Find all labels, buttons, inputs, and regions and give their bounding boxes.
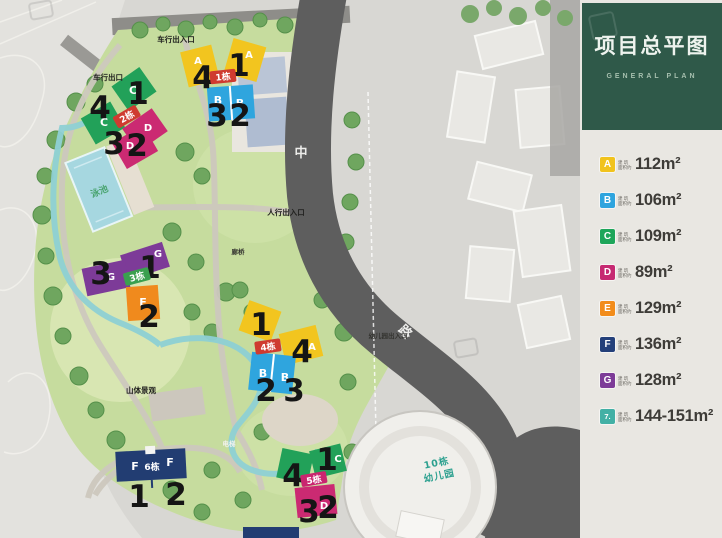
elevator-label: 电梯 — [223, 439, 237, 448]
watermark-mark — [588, 11, 619, 42]
unit-type-swatch: C — [600, 229, 615, 244]
road-name-char-top: 中 — [294, 145, 307, 161]
unit-number: 2 — [255, 373, 277, 409]
legend-panel: 项目总平图 GENERAL PLAN A建 筑面积约112m²B建 筑面积约10… — [580, 0, 722, 538]
unit-area: 112m² — [635, 155, 680, 174]
unit-area: 89m² — [635, 263, 672, 282]
pedestrian-entrance-label: 人行出入口 — [267, 207, 305, 217]
unit-type-swatch: E — [600, 301, 615, 316]
unit-type-swatch: D — [600, 265, 615, 280]
unit-number: 4 — [291, 334, 313, 370]
mountain-landscape-label: 山体景观 — [126, 385, 156, 395]
unit-number: 3 — [206, 98, 228, 134]
unit-area: 136m² — [635, 335, 681, 354]
screenshot-root: 泳池 10栋 幼儿园 中 路 A A — [0, 0, 722, 538]
legend-note: 建 筑面积约 — [618, 340, 632, 350]
legend-row: B建 筑面积约106m² — [600, 193, 713, 208]
legend-row: A建 筑面积约112m² — [600, 157, 713, 172]
unit-number: 1 — [250, 307, 272, 343]
cropped-building — [243, 527, 299, 538]
vehicle-exit-label: 车行出口 — [93, 72, 123, 82]
side-road — [550, 0, 580, 176]
kindergarten-entrance-label: 幼儿园出入口 — [369, 331, 408, 340]
unit-number: 4 — [282, 458, 304, 494]
unit-area: 129m² — [635, 299, 681, 318]
unit-number: 3 — [103, 126, 125, 162]
unit-letter: F — [131, 460, 139, 473]
legend-row: C建 筑面积约109m² — [600, 229, 713, 244]
legend-row: F建 筑面积约136m² — [600, 337, 713, 352]
unit-number: 3 — [90, 256, 112, 292]
unit-number: 1 — [128, 479, 150, 515]
bridge-label: 廊桥 — [232, 247, 246, 256]
plan-title-card: 项目总平图 GENERAL PLAN — [582, 3, 722, 130]
unit-number: 4 — [89, 90, 111, 126]
unit-legend: A建 筑面积约112m²B建 筑面积约106m²C建 筑面积约109m²D建 筑… — [600, 157, 713, 445]
legend-row: E建 筑面积约129m² — [600, 301, 713, 316]
unit-area: 144-151m² — [635, 407, 713, 426]
unit-number: 2 — [126, 128, 148, 164]
unit-type-swatch: 7. — [600, 409, 615, 424]
unit-type-swatch: B — [600, 193, 615, 208]
unit-number: 2 — [317, 490, 339, 526]
unit-number: 3 — [283, 373, 305, 409]
unit-letter: F — [166, 456, 174, 469]
legend-row: D建 筑面积约89m² — [600, 265, 713, 280]
page-subtitle: GENERAL PLAN — [582, 73, 722, 80]
legend-note: 建 筑面积约 — [618, 304, 632, 314]
unit-area: 128m² — [635, 371, 681, 390]
legend-note: 建 筑面积约 — [618, 376, 632, 386]
legend-note: 建 筑面积约 — [618, 196, 632, 206]
unit-number: 2 — [138, 299, 160, 335]
legend-note: 建 筑面积约 — [618, 268, 632, 278]
unit-number: 2 — [229, 98, 251, 134]
legend-note: 建 筑面积约 — [618, 160, 632, 170]
unit-number: 1 — [127, 76, 149, 112]
legend-row: G建 筑面积约128m² — [600, 373, 713, 388]
unit-area: 106m² — [635, 191, 681, 210]
unit-area: 109m² — [635, 227, 681, 246]
site-plan-map: 泳池 10栋 幼儿园 中 路 A A — [0, 0, 580, 538]
unit-type-swatch: G — [600, 373, 615, 388]
legend-note: 建 筑面积约 — [618, 232, 632, 242]
vehicle-entrance-label: 车行出入口 — [157, 34, 195, 44]
legend-row: 7.建 筑面积约144-151m² — [600, 409, 713, 424]
unit-type-swatch: A — [600, 157, 615, 172]
unit-number: 2 — [165, 477, 187, 513]
unit-type-swatch: F — [600, 337, 615, 352]
building-1-tag: 1栋 — [209, 69, 236, 85]
building-6-tag: 6栋 — [144, 461, 159, 473]
legend-note: 建 筑面积约 — [618, 412, 632, 422]
